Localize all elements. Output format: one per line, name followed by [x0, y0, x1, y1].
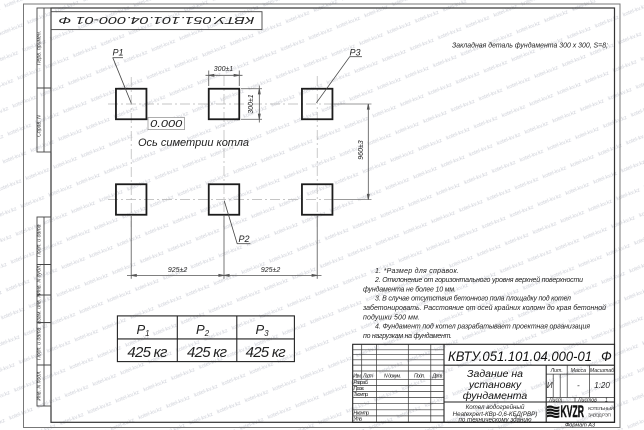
svg-text:Формат А3: Формат А3: [565, 422, 596, 428]
svg-text:Изм.: Изм.: [353, 374, 361, 380]
svg-text:Масса: Масса: [571, 368, 586, 374]
svg-text:подушки 500 мм.: подушки 500 мм.: [363, 313, 420, 321]
svg-text:установку: установку: [468, 379, 522, 391]
svg-text:Н.контр.: Н.контр.: [354, 411, 370, 417]
svg-text:Лист: Лист: [362, 374, 373, 380]
svg-text:Лит.: Лит.: [550, 368, 563, 374]
svg-text:Р1: Р1: [113, 48, 124, 58]
svg-text:3. В случае отсутствия бетонно: 3. В случае отсутствия бетонного пола пл…: [375, 295, 571, 303]
svg-text:Ось симетрии котла: Ось симетрии котла: [138, 137, 249, 149]
svg-text:KVZR: KVZR: [561, 402, 585, 421]
svg-text:N докум.: N докум.: [384, 374, 401, 380]
svg-text:425 кг: 425 кг: [246, 344, 287, 361]
svg-text:Закладная деталь фундамента 3: Закладная деталь фундамента 300 х 300, S…: [452, 42, 608, 50]
svg-text:1:20: 1:20: [594, 381, 610, 390]
svg-text:Ф: Ф: [601, 349, 612, 364]
svg-text:-: -: [577, 381, 580, 390]
svg-text:Подп. и дата: Подп. и дата: [37, 224, 43, 257]
svg-text:Р3: Р3: [350, 47, 361, 57]
svg-text:0.000: 0.000: [150, 118, 182, 130]
svg-text:Разраб.: Разраб.: [354, 380, 369, 386]
svg-text:фундамента: фундамента: [463, 390, 528, 402]
svg-text:2. Отклонение от горизонтально: 2. Отклонение от горизонтального уровня …: [374, 276, 583, 284]
svg-text:по нагрузкам на фундамент.: по нагрузкам на фундамент.: [363, 332, 452, 340]
svg-text:Утв.: Утв.: [354, 417, 363, 423]
svg-text:425 кг: 425 кг: [127, 344, 168, 361]
svg-text:по техническому зданию: по техническому зданию: [458, 417, 531, 424]
svg-text:Т.контр.: Т.контр.: [354, 392, 369, 398]
svg-text:фундамента не более 10 мм.: фундамента не более 10 мм.: [363, 285, 456, 293]
svg-text:Задание на: Задание на: [467, 368, 523, 380]
svg-text:Р2: Р2: [239, 234, 250, 244]
svg-text:КВТУ.051.101.04.000-01: КВТУ.051.101.04.000-01: [448, 349, 592, 364]
svg-text:Котел водогрейный: Котел водогрейный: [466, 404, 525, 411]
svg-text:300±1: 300±1: [248, 94, 255, 114]
svg-text:925±2: 925±2: [168, 267, 188, 274]
svg-text:И: И: [547, 381, 553, 390]
svg-text:1. *Размер для справок.: 1. *Размер для справок.: [375, 267, 459, 275]
svg-text:300±1: 300±1: [214, 66, 234, 73]
svg-text:Инв. N дубл.: Инв. N дубл.: [37, 265, 43, 295]
svg-text:Подп. и дата: Подп. и дата: [37, 327, 43, 360]
svg-text:Подп.: Подп.: [414, 374, 425, 380]
svg-text:4. Фундамент под котел разраба: 4. Фундамент под котел разрабатывает про…: [375, 323, 590, 331]
svg-text:Справ. N: Справ. N: [37, 115, 43, 137]
svg-text:Инв. N подл.: Инв. N подл.: [37, 370, 43, 400]
svg-text:Перв. примен.: Перв. примен.: [37, 31, 43, 65]
svg-text:Дата: Дата: [431, 374, 442, 380]
svg-text:КВТУ.051.101.04.000-01 Ф: КВТУ.051.101.04.000-01 Ф: [59, 14, 255, 26]
svg-text:1: 1: [605, 397, 608, 403]
svg-text:425 кг: 425 кг: [187, 344, 228, 361]
svg-text:ЗАВОД РЭП: ЗАВОД РЭП: [588, 413, 612, 419]
svg-text:Пров.: Пров.: [354, 386, 365, 392]
svg-text:Масштаб: Масштаб: [590, 368, 615, 374]
svg-text:960±3: 960±3: [358, 140, 365, 160]
svg-text:925±2: 925±2: [261, 267, 281, 274]
svg-text:Взам. инв. N: Взам. инв. N: [37, 293, 43, 323]
svg-text:забетонировать. Расстояние от: забетонировать. Расстояние от осей крайн…: [362, 304, 606, 312]
